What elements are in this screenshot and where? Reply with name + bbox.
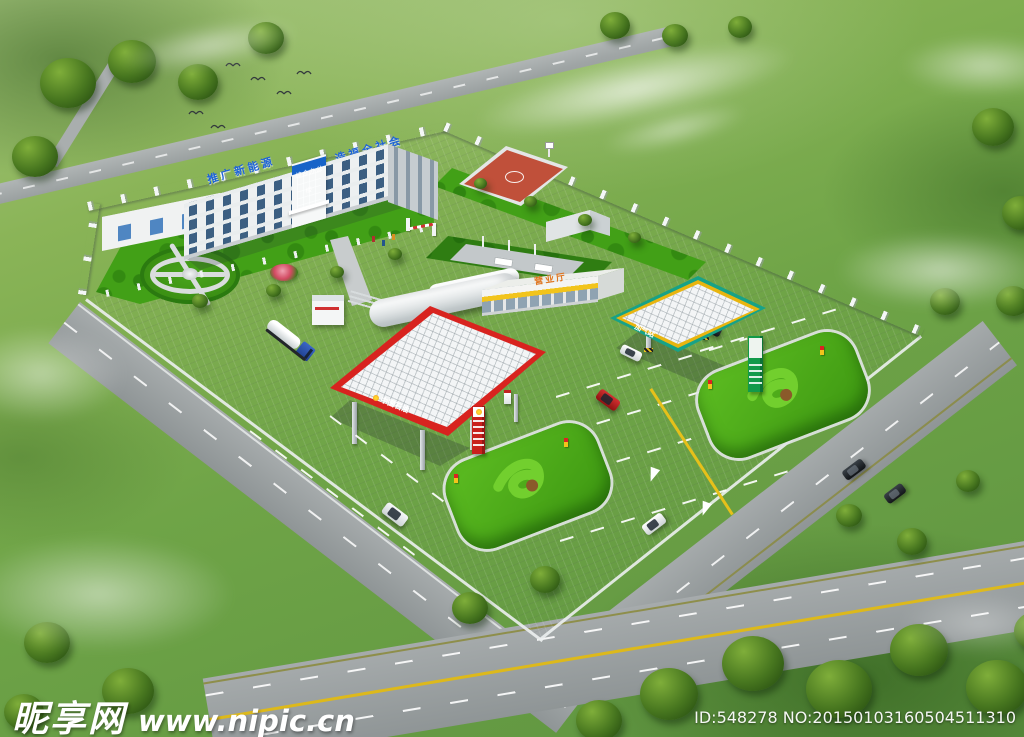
flower-bush	[270, 264, 298, 281]
office-entrance-tower: 综合办公楼	[292, 154, 326, 228]
petrochina-sun-logo-icon	[476, 409, 482, 415]
tree	[972, 108, 1014, 146]
person-3	[392, 234, 395, 240]
tree	[12, 136, 58, 177]
s-shaped-topiary	[731, 350, 832, 438]
totem-logo-panel	[473, 407, 484, 417]
bird-icon	[276, 88, 292, 96]
bird-icon	[250, 74, 266, 82]
platform-post-1	[482, 236, 484, 247]
watermark-site-name: 昵享网	[12, 690, 126, 737]
aerial-site-rendering: 推广新能源 造福全社会 综合办公楼	[0, 0, 1024, 737]
watermark-site-url: www.nipic.cn	[138, 704, 355, 737]
tree	[530, 566, 560, 593]
service-building: 营业厅	[482, 260, 628, 318]
car-glass	[624, 347, 636, 357]
petrol-price-totem	[472, 406, 485, 454]
court-center-circle	[505, 171, 524, 183]
skid-container-red-band	[315, 307, 339, 310]
island-marker-post	[564, 438, 568, 447]
tree	[897, 528, 927, 555]
island-lawn	[437, 414, 619, 557]
tree	[640, 668, 698, 720]
green-island-east	[688, 336, 878, 454]
tree	[576, 700, 622, 737]
cng-totem-panel	[749, 338, 762, 358]
bird-icon	[296, 68, 312, 76]
tree	[600, 12, 630, 39]
lawn-tree	[628, 232, 641, 243]
cng-totem-lines	[749, 362, 762, 384]
office-facade: 综合办公楼	[184, 144, 388, 260]
person-1	[372, 236, 375, 242]
lawn-tree	[330, 266, 344, 278]
tree	[728, 16, 752, 38]
island-lawn	[689, 323, 876, 467]
bird-icon	[188, 108, 204, 116]
garage-door-1	[118, 224, 131, 242]
lawn-tree	[578, 214, 592, 226]
tree	[836, 504, 862, 527]
petrochina-sun-logo-icon	[372, 394, 380, 402]
watermark-left: 昵享网 www.nipic.cn	[12, 690, 355, 737]
island-marker-post	[454, 474, 458, 483]
person-2	[382, 240, 385, 246]
lawn-tree	[524, 196, 537, 207]
basketball-hoop	[548, 146, 550, 157]
island-marker-post	[708, 380, 712, 389]
platform-post-2	[508, 240, 510, 251]
totem-price-lines	[473, 420, 484, 446]
car-glass	[600, 393, 613, 406]
backboard	[545, 142, 554, 149]
tree	[662, 24, 688, 47]
lawn-tree	[474, 178, 487, 189]
lawn-tree	[388, 248, 402, 260]
skid-container	[312, 295, 344, 325]
column-stripe-base	[644, 348, 653, 352]
s-shaped-topiary	[477, 441, 578, 529]
fuel-dispenser-2	[504, 390, 511, 404]
bird-icon	[210, 122, 226, 130]
office-building: 推广新能源 造福全社会 综合办公楼	[182, 126, 440, 258]
car-glass	[387, 507, 402, 521]
petrol-canopy-column-4	[514, 394, 518, 422]
tree	[452, 592, 488, 624]
watermark-image-id: ID:548278 NO:20150103160504511310	[694, 708, 1016, 727]
tree	[40, 58, 96, 108]
island-marker-post	[820, 346, 824, 355]
platform-post-3	[534, 244, 536, 255]
tree	[956, 470, 980, 492]
tree	[966, 660, 1024, 715]
cng-price-totem	[748, 336, 763, 392]
petrol-canopy-column-2	[420, 430, 425, 470]
lawn-tree	[192, 294, 208, 308]
green-island-south	[438, 426, 622, 548]
garage-door-2	[150, 218, 163, 236]
tree	[722, 636, 784, 691]
utility-building	[546, 206, 610, 250]
lawn-tree	[266, 284, 281, 297]
